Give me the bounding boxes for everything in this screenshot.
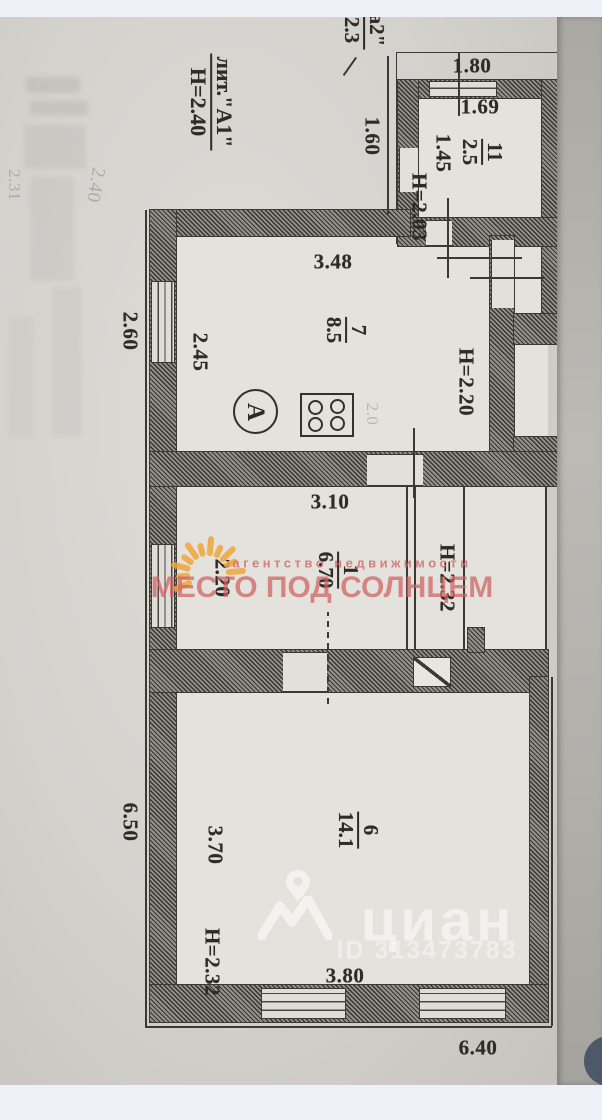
room-number: 6 — [357, 812, 382, 849]
wall — [150, 210, 410, 236]
pencil-note: 2.31 — [4, 169, 24, 201]
window — [420, 989, 505, 1018]
pencil-note: 2.0 — [362, 403, 382, 426]
bleed-smudge — [8, 317, 34, 437]
room-number: 7 — [345, 317, 370, 343]
room-area: 14.1 — [334, 812, 358, 849]
pencil-note: 2.40 — [81, 166, 109, 205]
dim-label: 6.50 — [118, 803, 143, 842]
dim-label: 1.45 — [431, 134, 456, 173]
room-label-11: 11 2.5 — [458, 139, 506, 165]
room-label-6: 6 14.1 — [334, 812, 382, 849]
bleed-smudge — [24, 125, 86, 169]
dim-label: 6.40 — [459, 1036, 498, 1061]
wall — [530, 677, 548, 1022]
outer-face-line — [145, 1026, 552, 1028]
dim-label: 3.70 — [203, 826, 228, 865]
wall-face-line — [551, 677, 553, 1026]
screenshot-root: 1.80 1.69 3.48 3.10 3.80 6.40 1.60 1.45 … — [0, 0, 602, 1120]
wall — [150, 650, 548, 692]
flue-icon — [413, 657, 451, 687]
cian-logo-icon — [258, 896, 332, 940]
room-area: 2.5 — [458, 139, 482, 165]
dim-label: 1.60 — [360, 117, 385, 156]
window — [152, 282, 174, 362]
gas-stove-icon — [300, 393, 354, 437]
dim-label: 2.45 — [188, 333, 213, 372]
dimension-line — [437, 257, 522, 259]
app-background-top — [0, 0, 602, 17]
liter-name: лит."А1" — [210, 54, 236, 151]
leader-line — [343, 57, 357, 76]
dim-label: 3.10 — [311, 490, 350, 515]
door-opening — [491, 240, 515, 308]
dim-label: 1.80 — [453, 54, 492, 79]
cian-watermark-id: ID 313473783 — [336, 937, 517, 966]
window — [262, 989, 345, 1018]
dim-label: Н=2.20 — [454, 348, 479, 416]
bleed-smudge — [52, 287, 82, 437]
dim-label: 3.48 — [314, 250, 353, 275]
bleed-smudge — [26, 77, 80, 93]
room-label-7: 7 8.5 — [322, 317, 370, 343]
agency-watermark-line1: агентство недвижимости — [232, 556, 471, 571]
liter-label: лит."А1" Н=2.40 — [186, 54, 236, 151]
bleed-smudge — [30, 177, 74, 281]
room-area: 8.5 — [322, 317, 346, 343]
dimension-line — [387, 56, 389, 214]
dim-label: Н=2.32 — [200, 928, 225, 996]
dimension-line — [470, 277, 545, 279]
letter-a-badge: А — [233, 389, 278, 434]
dimension-line-dashed — [327, 612, 329, 704]
door-opening — [367, 454, 423, 486]
agency-watermark-line2: МЕСТО ПОД СОЛНЦЕМ — [151, 571, 494, 605]
room-number: 11 — [481, 139, 506, 165]
bleed-smudge — [30, 101, 88, 115]
wall — [514, 314, 562, 344]
wall — [150, 452, 557, 486]
outer-face-line — [145, 210, 147, 1026]
dimension-line — [447, 198, 449, 278]
dim-label: 3.80 — [326, 964, 365, 989]
dim-label: 1.69 — [461, 95, 500, 120]
letter-a: А — [242, 402, 270, 420]
wall-face-line — [545, 486, 547, 650]
dimension-line — [413, 428, 415, 498]
paper-sheet: 1.80 1.69 3.48 3.10 3.80 6.40 1.60 1.45 … — [0, 17, 557, 1085]
liter-height: Н=2.40 — [186, 54, 211, 151]
dim-label: 2.60 — [118, 312, 143, 351]
photo-background-strip — [557, 17, 602, 1085]
floorplan-photo: 1.80 1.69 3.48 3.10 3.80 6.40 1.60 1.45 … — [0, 17, 602, 1085]
door-opening — [283, 652, 327, 692]
dim-label: Н=2.03 — [407, 173, 432, 241]
wall — [468, 628, 484, 652]
app-background-bottom — [0, 1085, 602, 1120]
